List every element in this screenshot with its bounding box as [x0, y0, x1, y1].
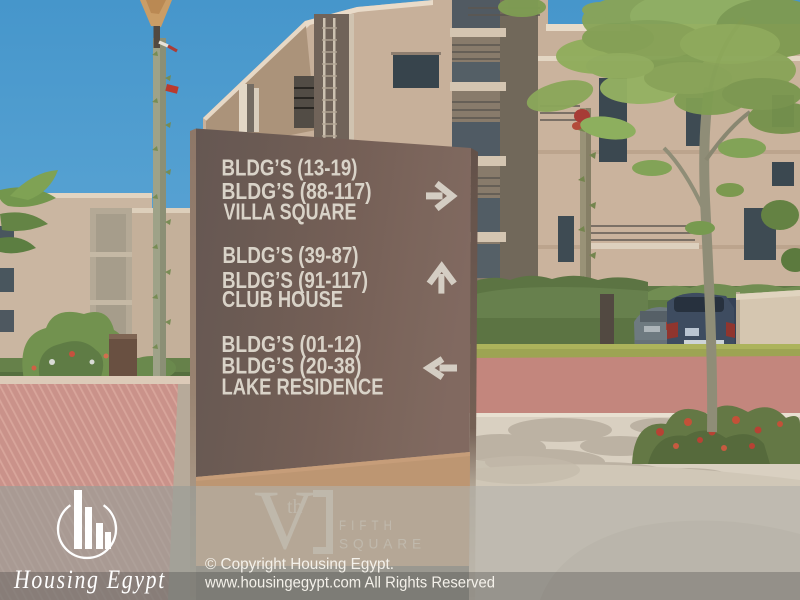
svg-text:Housing Egypt: Housing Egypt — [13, 565, 166, 594]
svg-text:© Copyright Housing Egypt.: © Copyright Housing Egypt. — [205, 556, 394, 573]
svg-text:www.housingegypt.com All Right: www.housingegypt.com All Rights Reserved — [204, 575, 495, 592]
